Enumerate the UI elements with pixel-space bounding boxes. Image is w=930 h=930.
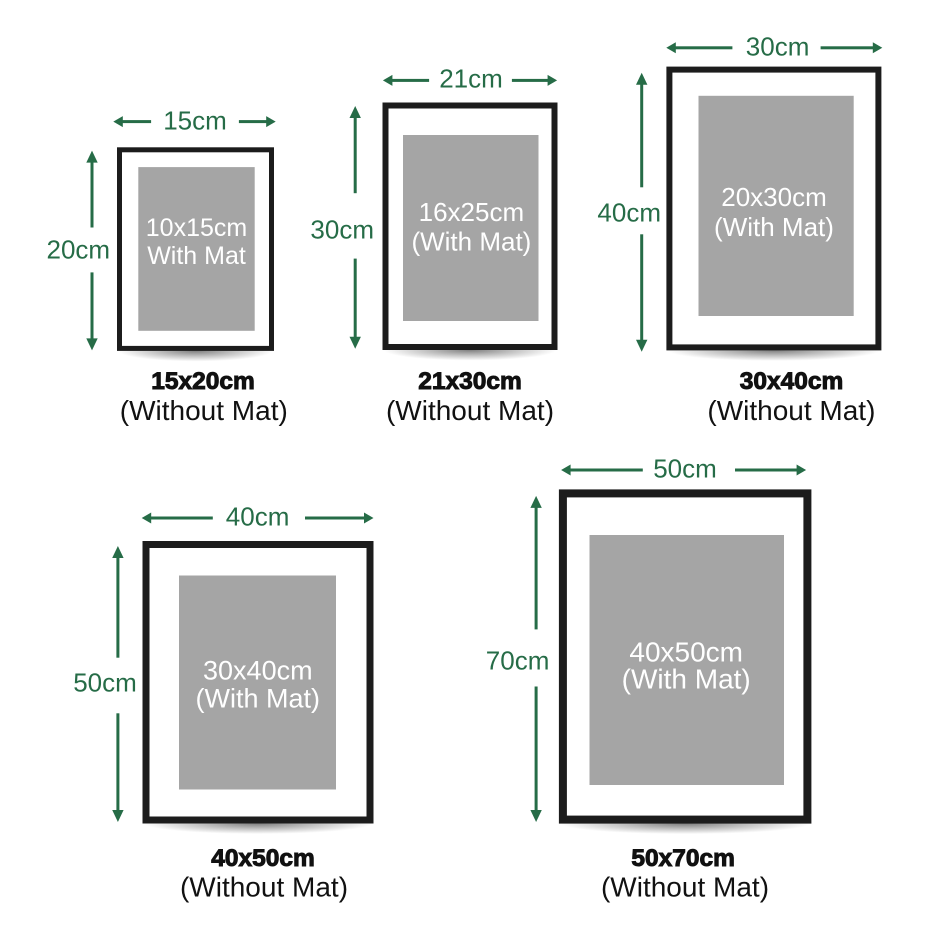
svg-text:10x15cm: 10x15cm xyxy=(146,214,247,242)
svg-text:(Without Mat): (Without Mat) xyxy=(180,871,348,902)
svg-text:16x25cm: 16x25cm xyxy=(419,197,525,227)
svg-text:(Without Mat): (Without Mat) xyxy=(386,395,554,426)
svg-text:15x20cm: 15x20cm xyxy=(151,368,255,395)
svg-text:With Mat: With Mat xyxy=(147,242,246,270)
svg-text:50cm: 50cm xyxy=(653,454,717,484)
svg-text:15cm: 15cm xyxy=(163,106,227,136)
svg-text:(With Mat): (With Mat) xyxy=(714,212,834,242)
svg-text:30cm: 30cm xyxy=(310,214,374,244)
svg-text:(Without Mat): (Without Mat) xyxy=(707,395,875,426)
svg-text:(Without Mat): (Without Mat) xyxy=(601,871,769,902)
svg-text:50cm: 50cm xyxy=(73,668,137,698)
svg-text:21x30cm: 21x30cm xyxy=(418,368,522,395)
svg-text:(Without Mat): (Without Mat) xyxy=(120,395,288,426)
svg-text:40cm: 40cm xyxy=(226,502,290,532)
svg-text:20cm: 20cm xyxy=(47,234,111,264)
svg-text:(With Mat): (With Mat) xyxy=(622,664,751,695)
svg-text:40x50cm: 40x50cm xyxy=(211,845,315,872)
svg-text:20x30cm: 20x30cm xyxy=(721,182,827,212)
svg-text:40cm: 40cm xyxy=(597,198,661,228)
svg-text:(With Mat): (With Mat) xyxy=(196,684,321,714)
svg-text:50x70cm: 50x70cm xyxy=(631,845,735,872)
svg-text:30x40cm: 30x40cm xyxy=(203,656,313,686)
svg-text:40x50cm: 40x50cm xyxy=(629,636,743,667)
svg-text:30cm: 30cm xyxy=(746,32,810,62)
svg-text:21cm: 21cm xyxy=(439,63,503,93)
svg-text:70cm: 70cm xyxy=(486,646,550,676)
svg-text:(With Mat): (With Mat) xyxy=(411,226,531,256)
svg-text:30x40cm: 30x40cm xyxy=(740,368,844,395)
